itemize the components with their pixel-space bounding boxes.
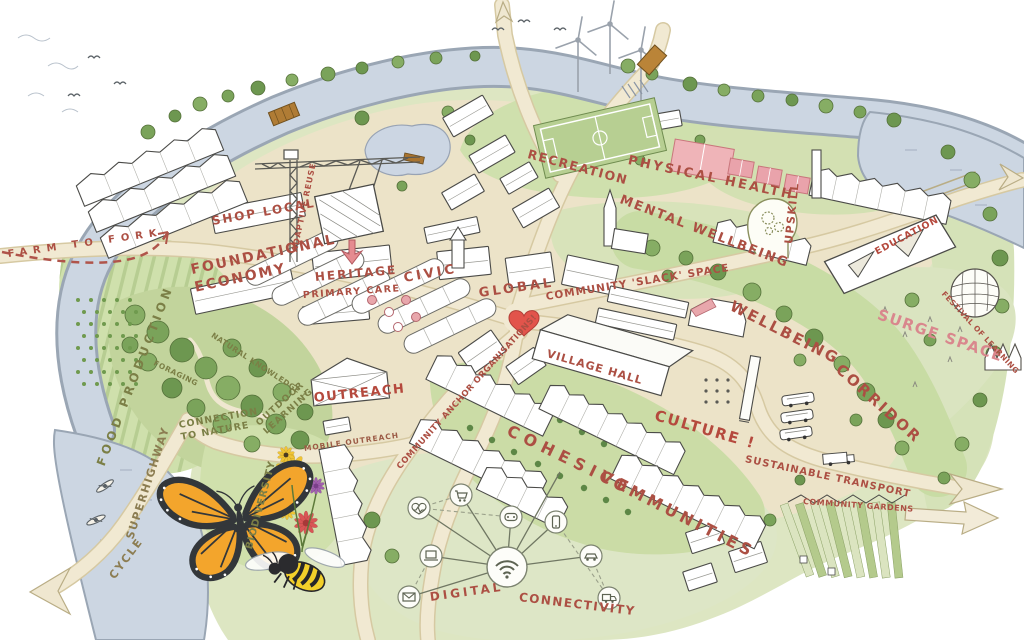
car-icon — [580, 545, 602, 567]
pond — [365, 124, 450, 175]
factory-chimney — [812, 150, 821, 198]
game-controller-icon — [500, 506, 522, 528]
health-icon — [408, 497, 430, 519]
smartphone-icon — [545, 511, 567, 533]
shopping-cart-icon — [450, 484, 472, 506]
illustrated-community-map: FARM TO FORK FOOD PRODUCTION FOUNDATIONA… — [0, 0, 1024, 640]
laptop-icon — [420, 545, 442, 567]
rocks-sketch — [18, 35, 78, 112]
mail-icon — [398, 586, 420, 608]
